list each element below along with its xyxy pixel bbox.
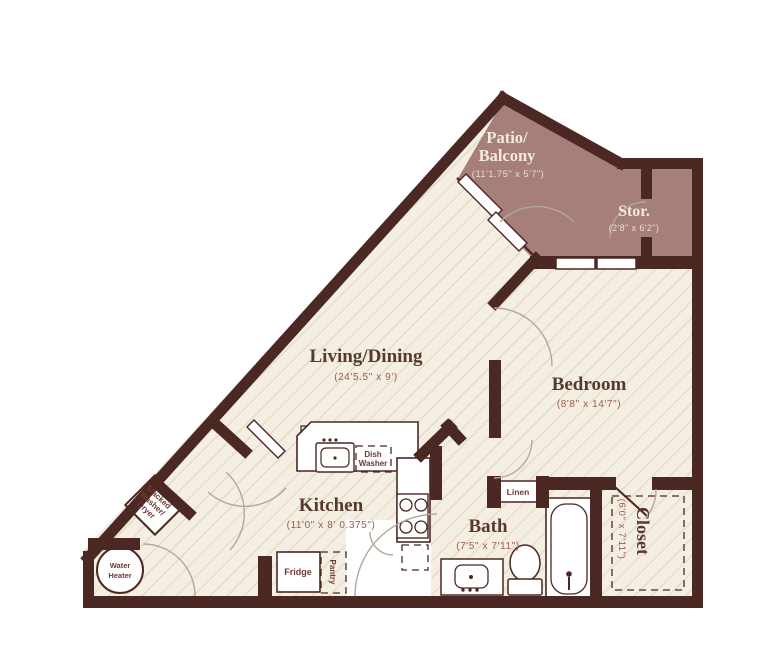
kitchen-label: Kitchen <box>299 495 364 516</box>
wall-right <box>692 158 703 608</box>
vanity-dot <box>468 588 471 591</box>
vanity-dot <box>461 588 464 591</box>
wall-water-heater <box>88 538 140 550</box>
sink-drain <box>333 456 336 459</box>
wall-left <box>83 551 94 603</box>
water-heater-label-line2: Heater <box>108 571 131 580</box>
patio-dims: (11'1.75" x 5'7") <box>472 169 544 180</box>
burner <box>415 521 427 533</box>
storage-dims: (2'8" x 6'2") <box>609 223 660 233</box>
living-dining-dims: (24'5.5" x 9') <box>334 372 398 383</box>
wall-linen-right <box>536 476 549 508</box>
closet-label: Closet <box>633 507 653 555</box>
wall-stor-left-b <box>641 237 652 267</box>
wall-closet-top-a <box>602 477 616 490</box>
bath-label: Bath <box>468 516 508 537</box>
bedroom-dims: (8'8" x 14'7") <box>557 399 621 410</box>
linen-label: Linen <box>507 487 530 497</box>
faucet-dot <box>334 438 337 441</box>
vanity-drain <box>469 575 473 579</box>
burner <box>400 499 412 511</box>
fridge-label: Fridge <box>284 567 312 577</box>
water-heater <box>97 547 143 593</box>
living-dining-label: Living/Dining <box>310 346 423 367</box>
wall-bedroom-west <box>489 360 501 438</box>
wall-closet-west <box>590 477 602 602</box>
burner <box>415 499 427 511</box>
kitchen-dims: (11'0" x 8' 0.375") <box>287 520 376 531</box>
wall-top <box>617 158 703 169</box>
bath-dims: (7'5" x 7'11") <box>456 541 520 552</box>
closet-dims: (6'0" x 7'11") <box>616 499 627 560</box>
vanity-dot <box>475 588 478 591</box>
wall-kitchen-east <box>430 446 442 500</box>
wall-linen-left <box>487 476 501 508</box>
floor-plan-svg: Patio/ Balcony (11'1.75" x 5'7") Stor. (… <box>0 0 764 661</box>
dishwasher-label-line1: Dish <box>364 450 381 459</box>
pantry-label: Pantry <box>328 560 337 585</box>
bedroom-window <box>556 258 595 269</box>
tub-drain <box>566 571 572 577</box>
faucet-dot <box>322 438 325 441</box>
floor-plan-page: Patio/ Balcony (11'1.75" x 5'7") Stor. (… <box>0 0 764 661</box>
storage-label: Stor. <box>618 203 650 220</box>
faucet-dot <box>328 438 331 441</box>
dishwasher-label-line2: Washer <box>359 459 388 468</box>
patio-label-line2: Balcony <box>479 146 537 165</box>
bedroom-label: Bedroom <box>552 374 627 395</box>
wall-entry-stub <box>258 556 272 608</box>
water-heater-label-line1: Water <box>110 561 131 570</box>
bedroom-window <box>597 258 636 269</box>
toilet-tank <box>508 579 542 595</box>
patio-label-line1: Patio/ <box>486 128 528 147</box>
wall-closet-top-b <box>652 477 703 490</box>
wall-stor-left-a <box>641 163 652 199</box>
wall-bottom <box>83 596 703 608</box>
burner <box>400 521 412 533</box>
